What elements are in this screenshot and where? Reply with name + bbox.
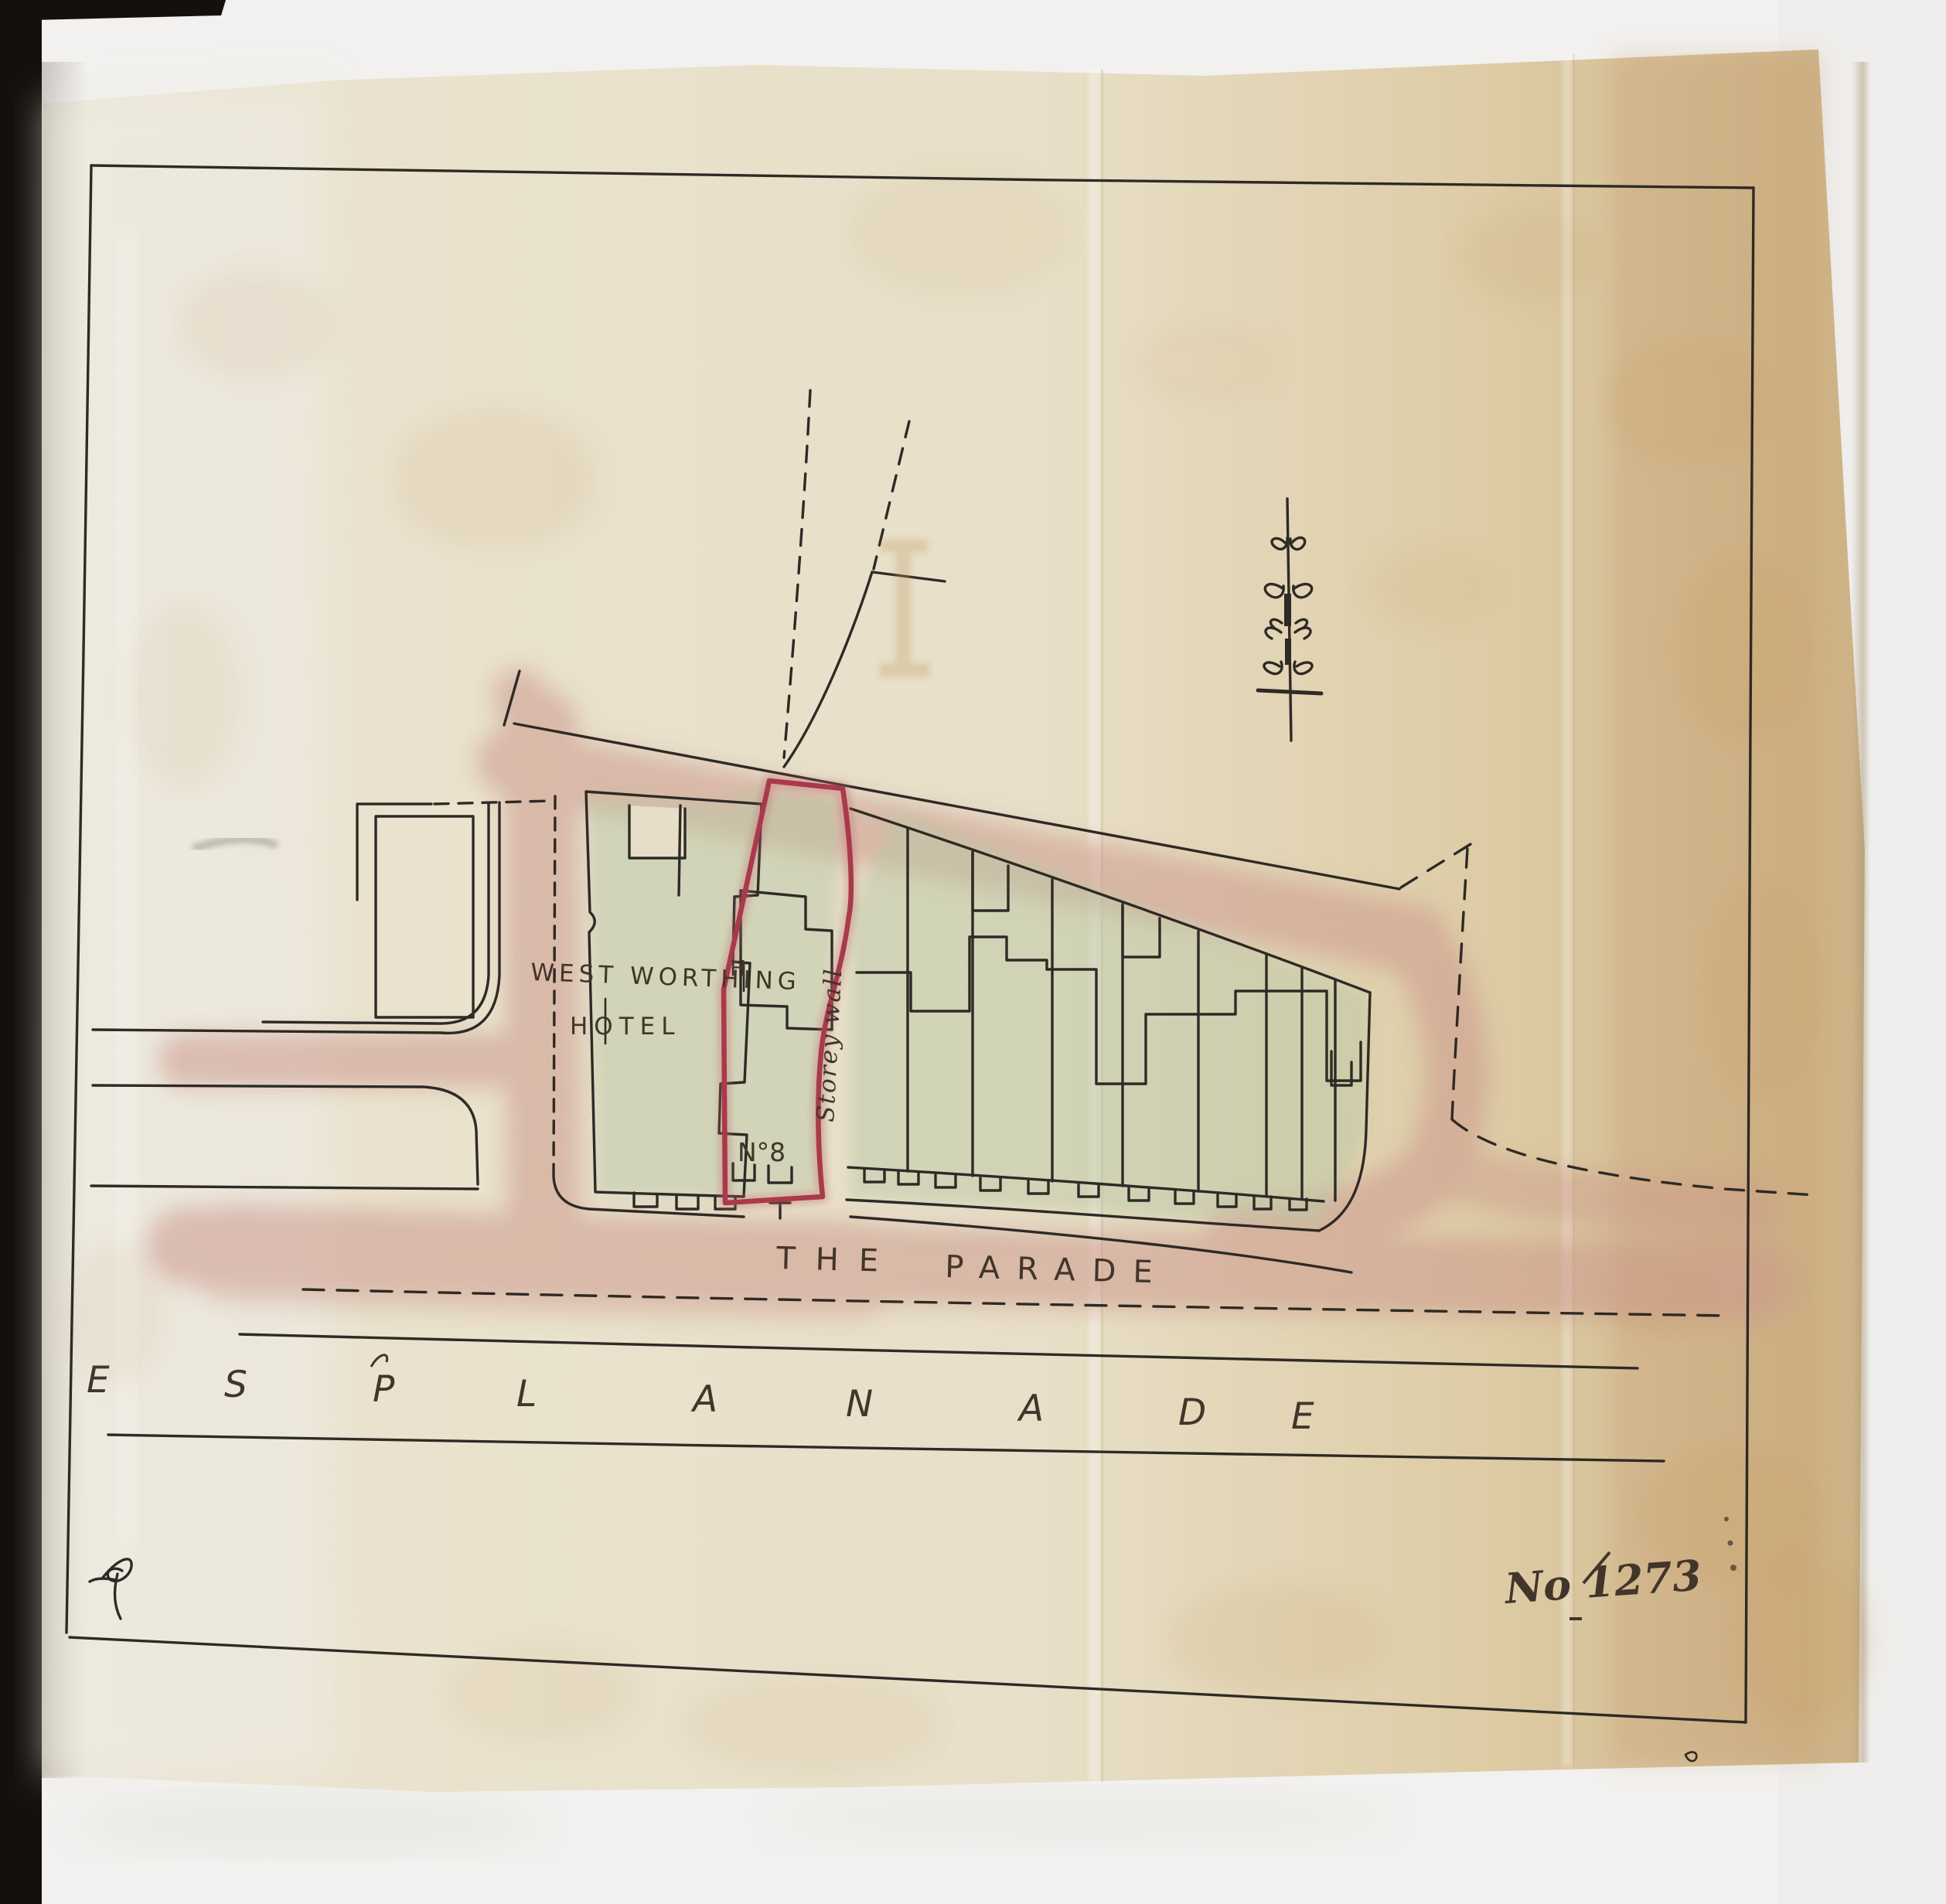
plan-canvas: WEST WORTHING HOTEL H N°8 Storey wall TH… [0,0,1946,1904]
page-curl-shadow [77,1793,541,1855]
esplanade-letter: A [690,1378,717,1421]
esplanade-letter: L [516,1373,537,1415]
esplanade-letter: E [1291,1395,1314,1438]
plot-number-label: N°8 [738,1137,786,1167]
scanned-plan-page: WEST WORTHING HOTEL H N°8 Storey wall TH… [0,0,1946,1904]
parade-label-the: THE [775,1241,899,1279]
esplanade-letter: E [87,1359,110,1402]
survey-mark-h: H [730,955,746,981]
esplanade-letter: S [224,1364,247,1406]
esplanade-letter: P [373,1368,395,1411]
esplanade-letter: D [1178,1391,1206,1434]
esplanade-letter: A [1017,1388,1044,1430]
parade-label-parade: PARADE [945,1249,1171,1291]
page-curl-shadow [773,1790,1392,1844]
page-edge-shadow [1852,62,1870,1763]
hotel-label-line2: HOTEL [570,1013,681,1041]
esplanade-letter: N [846,1383,873,1425]
